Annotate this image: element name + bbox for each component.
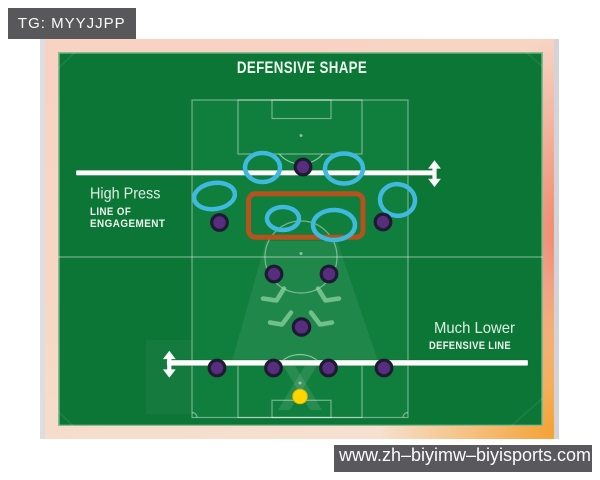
svg-text:High Press: High Press	[90, 185, 160, 203]
svg-text:DEFENSIVE LINE: DEFENSIVE LINE	[429, 340, 511, 352]
svg-text:LINE OF: LINE OF	[90, 207, 131, 219]
svg-text:DEFENSIVE SHAPE: DEFENSIVE SHAPE	[237, 59, 367, 78]
svg-text:ENGAGEMENT: ENGAGEMENT	[90, 219, 166, 231]
svg-text:Much Lower: Much Lower	[434, 320, 515, 337]
